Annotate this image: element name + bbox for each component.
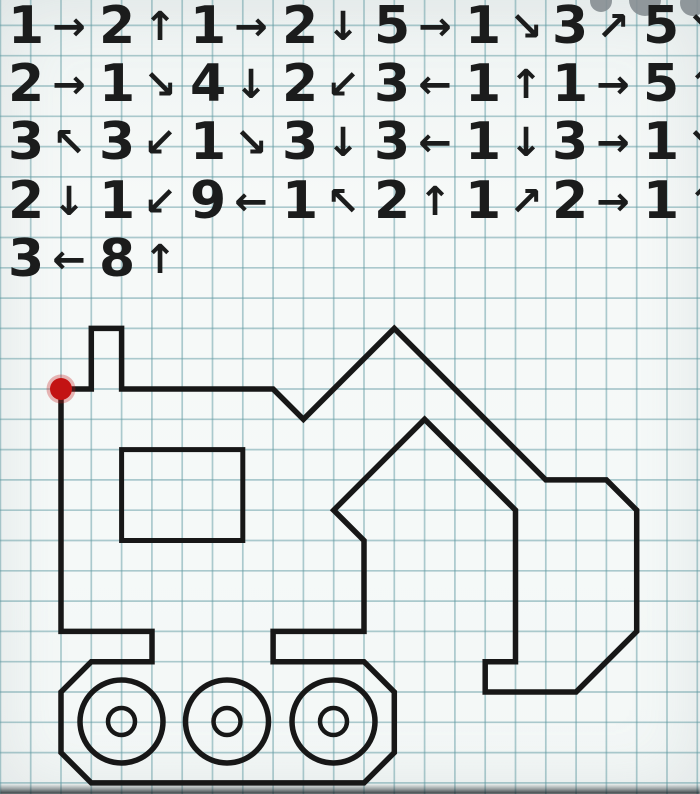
instruction-count: 3: [99, 116, 134, 168]
instruction-count: 2: [374, 175, 409, 227]
instruction-item: 1↑: [465, 58, 543, 110]
instruction-item: 1↑: [643, 175, 700, 227]
arrow-down-right-icon: ↘: [509, 7, 543, 47]
instruction-item: 8↑: [99, 233, 177, 285]
arrow-down-icon: ↓: [234, 65, 268, 105]
instruction-item: 1↗: [465, 175, 543, 227]
instruction-count: 3: [8, 233, 43, 285]
instruction-count: 2: [552, 175, 587, 227]
arrow-left-icon: ←: [418, 65, 452, 105]
instruction-count: 1: [99, 58, 134, 110]
arrow-up-icon: ↑: [509, 65, 543, 105]
instruction-count: 3: [374, 116, 409, 168]
instruction-count: 4: [190, 58, 225, 110]
instruction-item: 2↓: [8, 175, 86, 227]
instruction-count: 5: [374, 0, 409, 52]
arrow-down-icon: ↓: [326, 7, 360, 47]
arrow-up-icon: ↑: [687, 182, 700, 222]
arrow-up-icon: ↑: [418, 182, 452, 222]
arrow-right-icon: →: [596, 123, 630, 163]
instruction-item: 2↑: [374, 175, 452, 227]
instruction-item: 3←: [374, 58, 452, 110]
instruction-count: 1: [99, 175, 134, 227]
arrow-down-icon: ↓: [509, 123, 543, 163]
worksheet: 1→2↑1→2↓5→1↘3↗5↘2→1↘4↓2↙3←1↑1→5↑3↖3↙1↘3↓…: [0, 0, 700, 794]
instruction-item: 1↘: [99, 58, 177, 110]
arrow-up-left-icon: ↖: [326, 182, 360, 222]
photo-edge-shadow: [0, 784, 700, 794]
instruction-count: 1: [465, 58, 500, 110]
arrow-up-icon: ↑: [143, 240, 177, 280]
instruction-count: 3: [552, 0, 587, 52]
instruction-item: 1↘: [190, 116, 268, 168]
instruction-item: 2→: [8, 58, 86, 110]
arrow-down-right-icon: ↘: [234, 123, 268, 163]
instruction-count: 5: [643, 0, 678, 52]
instruction-item: 3↙: [99, 116, 177, 168]
arrow-down-icon: ↓: [326, 123, 360, 163]
arrow-down-right-icon: ↘: [687, 123, 700, 163]
instruction-count: 3: [374, 58, 409, 110]
arrow-down-left-icon: ↙: [143, 123, 177, 163]
instruction-count: 1: [8, 0, 43, 52]
instruction-count: 1: [190, 0, 225, 52]
instruction-item: 2→: [552, 175, 630, 227]
instruction-item: 5→: [374, 0, 452, 52]
arrow-down-right-icon: ↘: [143, 65, 177, 105]
arrow-right-icon: →: [596, 182, 630, 222]
instruction-count: 2: [99, 0, 134, 52]
instruction-count: 5: [643, 58, 678, 110]
instruction-item: 5↘: [643, 0, 700, 52]
arrow-right-icon: →: [234, 7, 268, 47]
instruction-count: 1: [552, 58, 587, 110]
instruction-item: 3←: [8, 233, 86, 285]
instruction-count: 1: [643, 175, 678, 227]
instruction-count: 2: [282, 58, 317, 110]
instruction-count: 3: [552, 116, 587, 168]
instruction-item: 1↘: [465, 0, 543, 52]
arrow-left-icon: ←: [418, 123, 452, 163]
instruction-item: 1→: [190, 0, 268, 52]
arrow-up-icon: ↑: [143, 7, 177, 47]
instruction-count: 2: [8, 175, 43, 227]
arrow-right-icon: →: [52, 65, 86, 105]
arrow-up-icon: ↑: [687, 65, 700, 105]
instruction-count: 2: [282, 0, 317, 52]
arrow-right-icon: →: [596, 65, 630, 105]
instruction-item: 3←: [374, 116, 452, 168]
instruction-item: 3↗: [552, 0, 630, 52]
instruction-count: 1: [190, 116, 225, 168]
arrow-up-left-icon: ↖: [52, 123, 86, 163]
arrow-up-right-icon: ↗: [509, 182, 543, 222]
arrow-left-icon: ←: [234, 182, 268, 222]
arrow-left-icon: ←: [52, 240, 86, 280]
arrow-up-right-icon: ↗: [596, 7, 630, 47]
instruction-item: 3↓: [282, 116, 360, 168]
instruction-item: 1→: [8, 0, 86, 52]
instruction-item: 1↖: [282, 175, 360, 227]
instruction-count: 1: [282, 175, 317, 227]
arrow-right-icon: →: [52, 7, 86, 47]
instruction-item: 1↓: [465, 116, 543, 168]
instruction-item: 2↙: [282, 58, 360, 110]
dictation-instructions: 1→2↑1→2↓5→1↘3↗5↘2→1↘4↓2↙3←1↑1→5↑3↖3↙1↘3↓…: [0, 0, 700, 794]
instruction-item: 9←: [190, 175, 268, 227]
instruction-item: 3→: [552, 116, 630, 168]
instruction-item: 3↖: [8, 116, 86, 168]
arrow-down-left-icon: ↙: [326, 65, 360, 105]
instruction-count: 2: [8, 58, 43, 110]
instruction-item: 1↙: [99, 175, 177, 227]
instruction-count: 1: [465, 175, 500, 227]
arrow-down-right-icon: ↘: [687, 7, 700, 47]
instruction-item: 2↓: [282, 0, 360, 52]
arrow-down-left-icon: ↙: [143, 182, 177, 222]
instruction-item: 1→: [552, 58, 630, 110]
arrow-right-icon: →: [418, 7, 452, 47]
instruction-count: 1: [643, 116, 678, 168]
instruction-item: 5↑: [643, 58, 700, 110]
instruction-count: 3: [282, 116, 317, 168]
arrow-down-icon: ↓: [52, 182, 86, 222]
instruction-count: 1: [465, 116, 500, 168]
instruction-count: 1: [465, 0, 500, 52]
instruction-count: 3: [8, 116, 43, 168]
instruction-count: 9: [190, 175, 225, 227]
instruction-count: 8: [99, 233, 134, 285]
instruction-item: 1↘: [643, 116, 700, 168]
instruction-item: 2↑: [99, 0, 177, 52]
instruction-item: 4↓: [190, 58, 268, 110]
